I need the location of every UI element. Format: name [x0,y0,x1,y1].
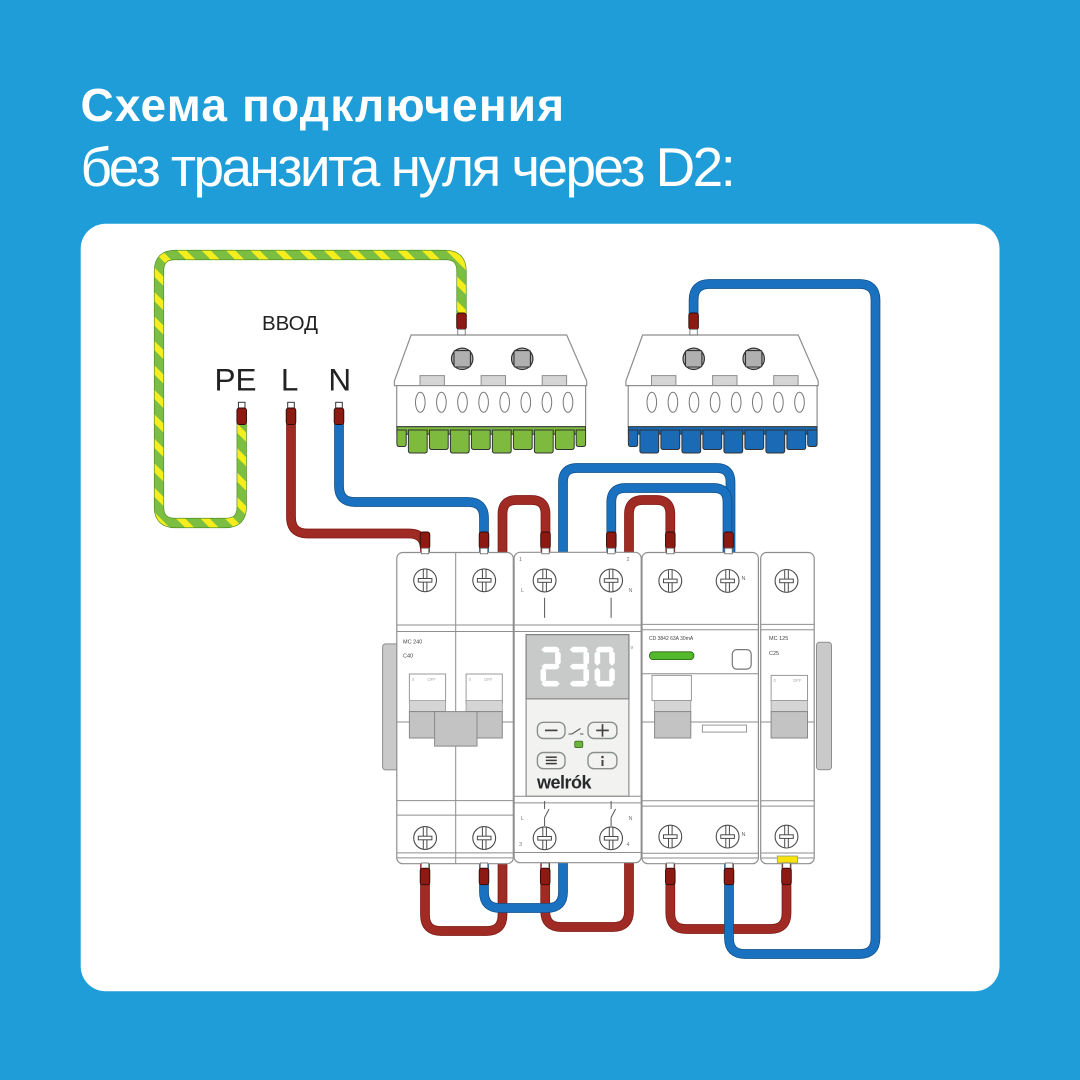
svg-text:2: 2 [627,557,630,563]
svg-text:CD 3842 63A 30mA: CD 3842 63A 30mA [649,636,694,642]
svg-text:3: 3 [519,842,522,848]
svg-text:ВВОД: ВВОД [262,312,318,335]
svg-text:C25: C25 [769,651,779,657]
svg-text:N: N [328,362,351,398]
svg-text:L: L [521,816,524,822]
svg-text:MC 125: MC 125 [769,636,788,642]
svg-text:MC 240: MC 240 [403,640,422,646]
svg-text:PE: PE [214,362,256,398]
svg-text:C40: C40 [403,654,413,660]
svg-text:1: 1 [519,557,522,563]
svg-text:OFF: OFF [427,677,436,682]
svg-text:OFF: OFF [484,677,493,682]
svg-text:OFF: OFF [793,678,802,683]
svg-text:N: N [742,832,746,838]
svg-text:v: v [631,645,634,651]
svg-text:N: N [742,576,746,582]
svg-text:4: 4 [627,842,630,848]
svg-text:L: L [521,588,524,594]
svg-text:N: N [629,588,633,594]
svg-text:Схема подключения: Схема подключения [81,79,566,131]
svg-text:N: N [629,816,633,822]
svg-text:L: L [281,362,299,398]
svg-text:без транзита нуля через D2:: без транзита нуля через D2: [81,136,734,198]
svg-text:welrók: welrók [536,772,593,792]
